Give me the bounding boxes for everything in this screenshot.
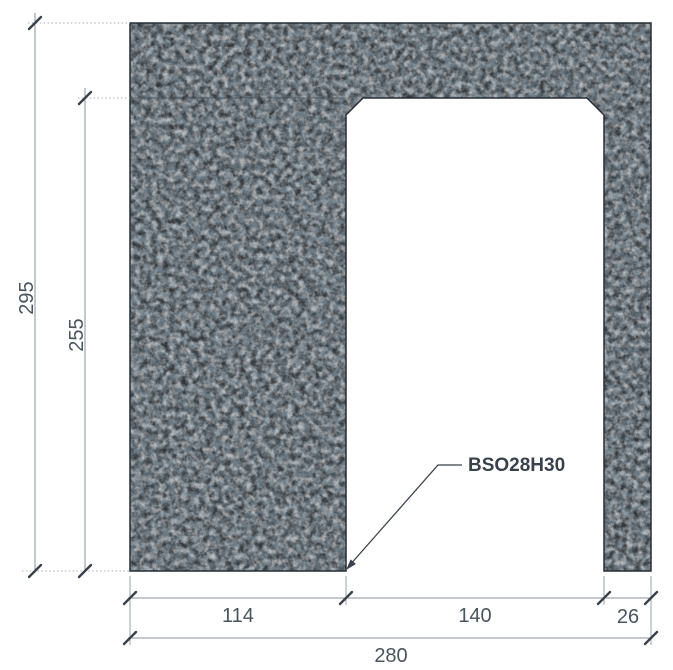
part-label: BSO28H30 [468,455,565,476]
dim-opening-width: 140 [458,605,491,627]
concrete-section-body [130,23,651,571]
dim-total-width: 280 [374,645,407,667]
dim-total-height: 295 [16,281,38,314]
technical-drawing-canvas: 295 255 114 140 26 280 BSO28H30 [0,0,673,670]
dim-opening-height: 255 [66,318,88,351]
dim-right-leg-width: 26 [617,606,639,628]
concrete-portal-section-drawing: 295 255 114 140 26 280 BSO28H30 [0,0,673,670]
leader-line [346,465,462,570]
dim-left-leg-width: 114 [222,605,254,627]
leader-arrowhead-icon [346,559,356,570]
concrete-light-speckle-texture [130,23,651,571]
